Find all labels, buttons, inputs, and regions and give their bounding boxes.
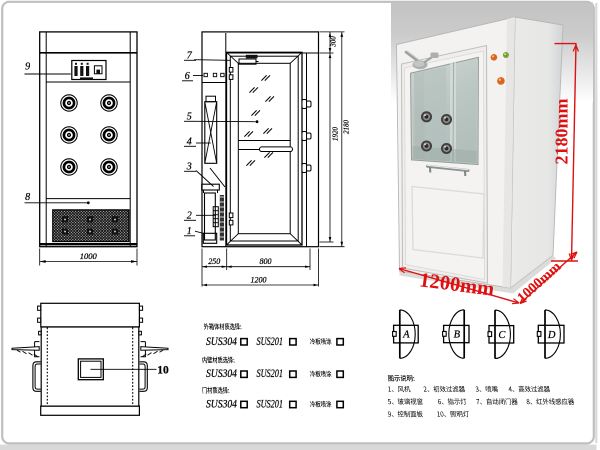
- svg-text:SUS201: SUS201: [257, 336, 284, 348]
- svg-text:9: 9: [25, 62, 30, 73]
- svg-text:1200: 1200: [251, 276, 267, 285]
- svg-text:A: A: [402, 330, 410, 341]
- svg-text:SUS304: SUS304: [206, 368, 237, 380]
- svg-text:10: 10: [157, 365, 169, 377]
- svg-text:1000: 1000: [80, 251, 98, 261]
- svg-text:C: C: [498, 330, 506, 341]
- svg-text:B: B: [454, 330, 461, 341]
- svg-text:6: 6: [185, 71, 190, 82]
- svg-text:2180: 2180: [343, 120, 351, 135]
- svg-text:1920: 1920: [332, 127, 340, 142]
- svg-text:SUS304: SUS304: [206, 399, 237, 411]
- svg-text:800: 800: [260, 257, 272, 266]
- svg-text:D: D: [547, 330, 556, 341]
- svg-text:5: 5: [187, 112, 192, 123]
- svg-text:2180mm: 2180mm: [552, 99, 572, 165]
- svg-text:300: 300: [330, 36, 338, 48]
- svg-text:SUS304: SUS304: [206, 336, 237, 348]
- svg-text:SUS201: SUS201: [257, 368, 284, 380]
- svg-text:8: 8: [25, 192, 30, 203]
- svg-text:250: 250: [208, 257, 220, 266]
- svg-text:SUS201: SUS201: [257, 399, 284, 411]
